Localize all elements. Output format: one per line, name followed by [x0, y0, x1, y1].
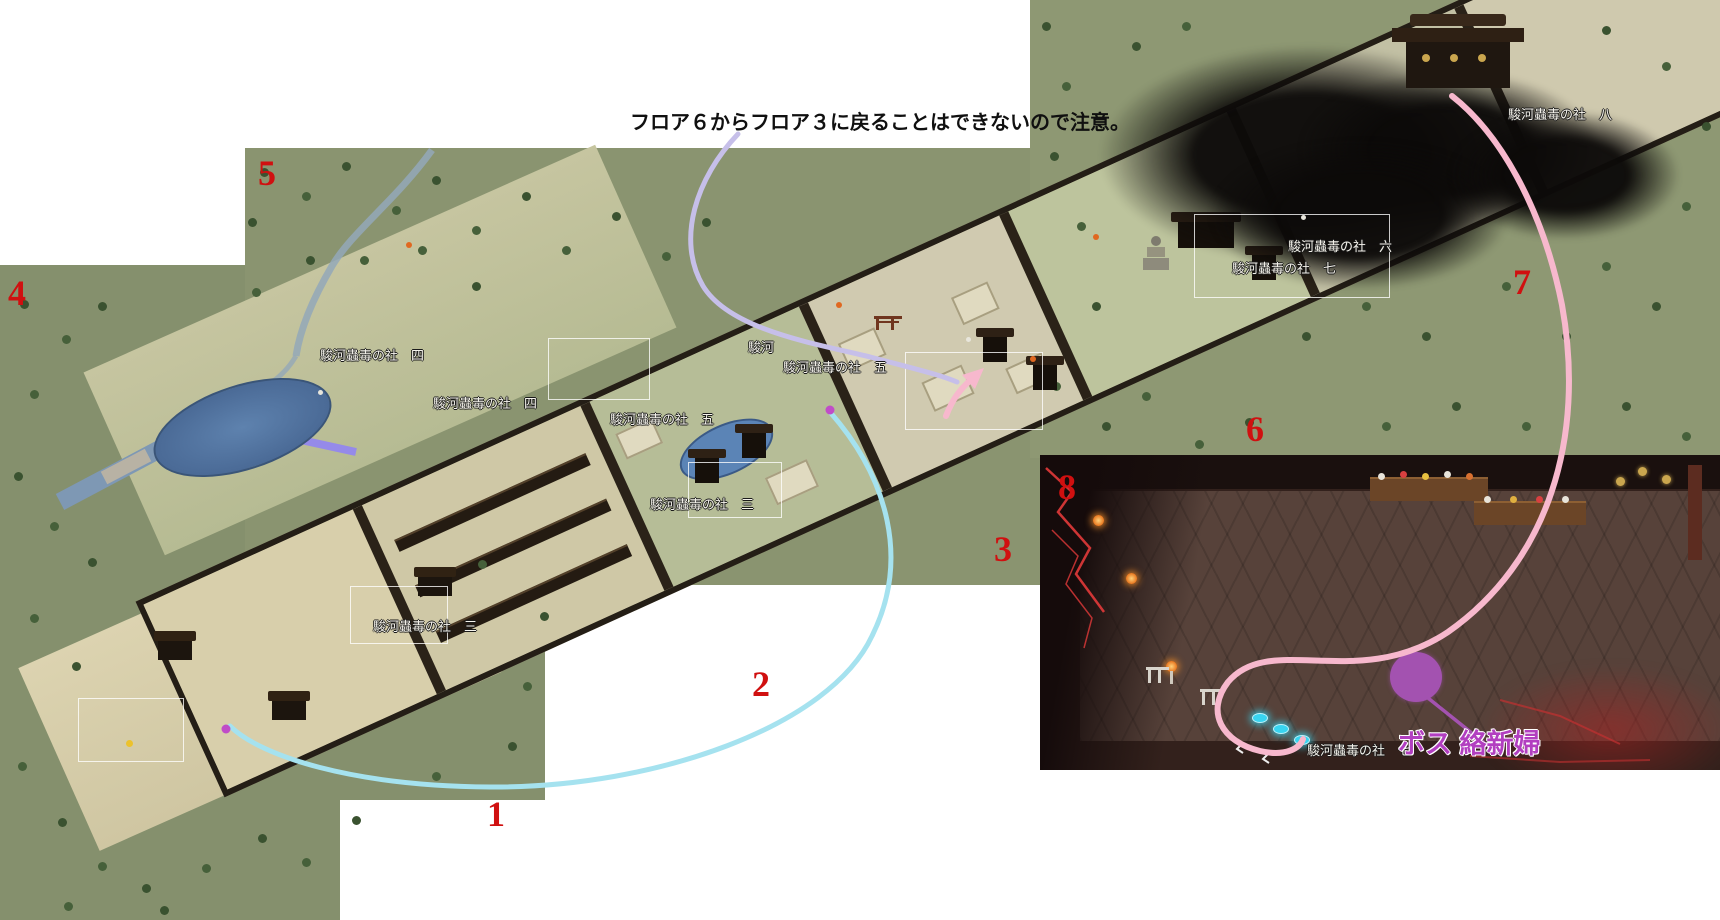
inset-torii-pillar — [1688, 465, 1702, 560]
waypoint-dot — [966, 337, 971, 342]
pagoda-cap — [1151, 236, 1161, 246]
torch-stem — [1170, 671, 1173, 684]
shrine-label-three-b: 駿河蟲毒の社 三 — [373, 620, 477, 635]
shrine-label-four-a: 駿河蟲毒の社 四 — [320, 349, 424, 364]
small-torii-icon — [1202, 689, 1215, 705]
torch-flame — [1093, 515, 1104, 526]
altar-ornament — [1616, 477, 1625, 486]
offering-table — [1474, 501, 1586, 525]
yellow-marker — [126, 740, 133, 747]
floor-number-6: 6 — [1246, 411, 1264, 447]
shrine-upper-roof — [1410, 14, 1506, 26]
burnt-area-blob — [1450, 110, 1680, 240]
orange-marker — [406, 242, 412, 248]
main-shrine-building — [1392, 14, 1542, 94]
offering — [1400, 471, 1407, 478]
offering — [1510, 496, 1517, 503]
offering-table — [1370, 477, 1488, 501]
entry-glow-dot — [1273, 724, 1289, 734]
entry-glow-dot — [1252, 713, 1268, 723]
shrine-body — [1406, 42, 1510, 88]
offering — [1536, 496, 1543, 503]
floor-number-4: 4 — [8, 275, 26, 311]
orange-marker — [1030, 356, 1036, 362]
altar-ornament — [1662, 475, 1671, 484]
orange-marker — [836, 302, 842, 308]
floor-number-8: 8 — [1058, 469, 1076, 505]
highlight-box — [905, 352, 1043, 430]
shrine-label-seven-inset: 駿河蟲毒の社 七 — [1307, 744, 1411, 759]
shrine-main-roof — [1392, 28, 1524, 42]
waypoint-dot — [1301, 215, 1306, 220]
orange-marker — [1093, 234, 1099, 240]
highlight-box — [1194, 214, 1390, 298]
torch-flame — [1126, 573, 1137, 584]
tree-cluster-right — [0, 0, 9, 9]
offering — [1466, 473, 1473, 480]
small-shrine-hut — [272, 700, 306, 720]
floor-number-7: 7 — [1513, 264, 1531, 300]
pagoda-base — [1143, 258, 1169, 270]
altar-ornament — [1638, 467, 1647, 476]
floor-number-5: 5 — [258, 155, 276, 191]
offering — [1422, 473, 1429, 480]
highlight-box — [78, 698, 184, 762]
shrine-label-six: 駿河蟲毒の社 六 — [1288, 240, 1392, 255]
floor8-inset — [1040, 455, 1720, 770]
shrine-label-seven: 駿河蟲毒の社 七 — [1232, 262, 1336, 277]
boss-location-dot — [1390, 652, 1442, 702]
offering — [1562, 496, 1569, 503]
shrine-label-four-b: 駿河蟲毒の社 四 — [433, 397, 537, 412]
floor-number-1: 1 — [487, 796, 505, 832]
offering — [1484, 496, 1491, 503]
shrine-label-five-b: 駿河蟲毒の社 五 — [783, 361, 887, 376]
shrine-label-five-a: 駿河蟲毒の社 五 — [610, 413, 714, 428]
waypoint-dot — [318, 390, 323, 395]
warning-annotation: フロア６からフロア３に戻ることはできないので注意。 — [630, 106, 1130, 135]
shrine-gold-ornaments — [1422, 54, 1430, 62]
pagoda-tier — [1147, 247, 1165, 257]
shrine-label-eight: 駿河蟲毒の社 八 — [1508, 108, 1612, 123]
highlight-box — [548, 338, 650, 400]
small-torii-icon — [1148, 667, 1161, 683]
highlight-box — [350, 586, 448, 644]
floor-number-2: 2 — [752, 666, 770, 702]
torii-icon — [876, 316, 894, 330]
small-shrine-hut — [158, 640, 192, 660]
floor-number-3: 3 — [994, 531, 1012, 567]
boss-label: ボス 絡新婦 — [1398, 722, 1541, 761]
gatehouse — [742, 430, 766, 458]
guide-map-canvas: 駿河蟲毒の社 四 駿河蟲毒の社 四 駿河蟲毒の社 五 駿河 駿河蟲毒の社 五 駿… — [0, 0, 1720, 920]
offering — [1444, 471, 1451, 478]
shrine-label-five-partial: 駿河 — [748, 341, 774, 356]
stone-pagoda — [1143, 236, 1169, 272]
offering — [1378, 473, 1385, 480]
shrine-label-three-a: 駿河蟲毒の社 三 — [650, 498, 754, 513]
